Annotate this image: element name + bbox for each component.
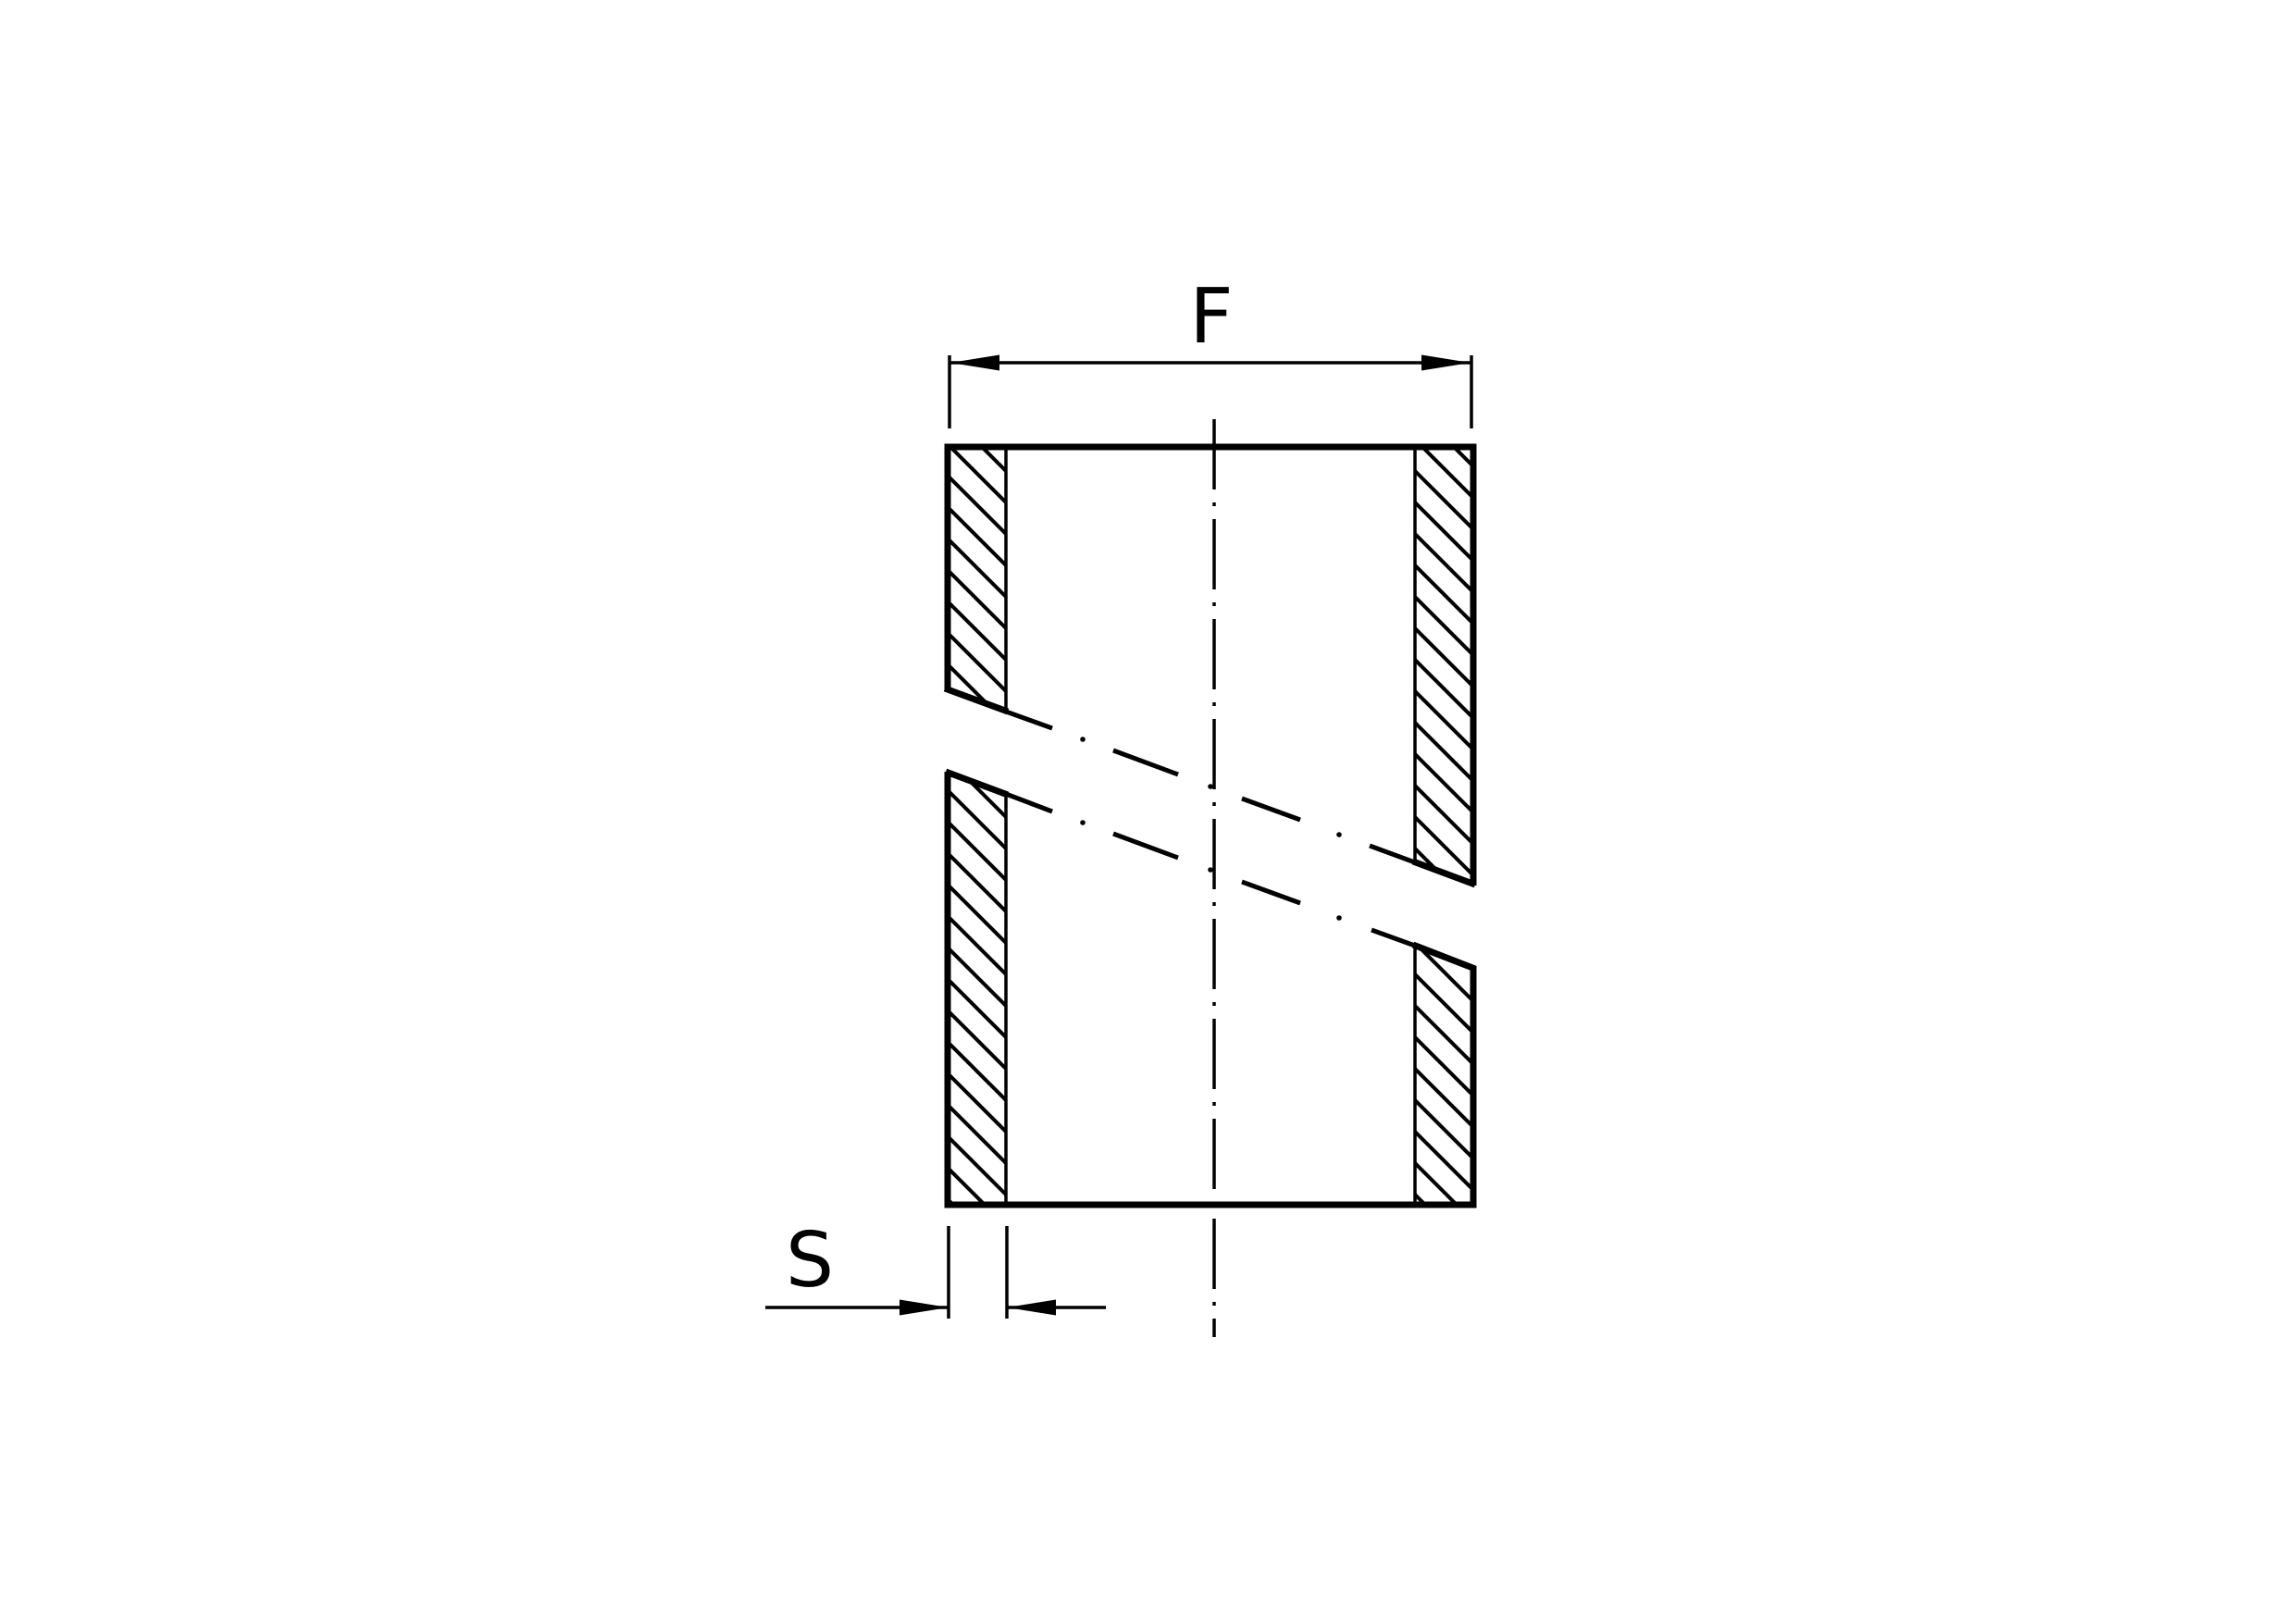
break-upper-dash-4 <box>1370 846 1415 862</box>
break-lower-dash-3 <box>1242 882 1300 903</box>
break-upper-dash-2 <box>1113 750 1178 774</box>
section-hatching <box>948 447 1473 1205</box>
break-lower-dot-3 <box>1336 915 1342 921</box>
f-arrowhead-left <box>950 355 999 371</box>
hatch-upper-left-wall <box>948 447 1006 712</box>
hatch-lower-right-wall <box>1415 946 1473 1205</box>
break-upper-dot-3 <box>1336 832 1342 837</box>
break-lower-dot-2 <box>1208 867 1213 873</box>
dimension-f: F <box>949 273 1471 428</box>
s-arrowhead-left <box>900 1300 949 1316</box>
break-upper-dash-3 <box>1242 799 1300 820</box>
pipe-section-drawing: F S <box>0 0 2296 1623</box>
drawing-canvas: F S <box>0 0 2296 1623</box>
hatch-upper-right-wall <box>1415 447 1473 885</box>
break-lower-dash-1 <box>1006 794 1052 811</box>
break-line-upper <box>945 688 1475 885</box>
dimension-label-f: F <box>1189 273 1233 361</box>
break-lower-dash-2 <box>1113 834 1178 858</box>
break-upper-dot-2 <box>1208 784 1213 789</box>
dimension-label-s: S <box>786 1217 834 1305</box>
f-arrowhead-right <box>1421 355 1471 371</box>
break-upper-dot-1 <box>1080 737 1086 742</box>
break-lower-dot-1 <box>1080 820 1086 825</box>
break-upper-dash-1 <box>1006 712 1052 728</box>
break-line-lower <box>946 772 1475 969</box>
dimension-s: S <box>765 1217 1106 1319</box>
break-lower-dash-4 <box>1371 930 1415 946</box>
bore-inner-edges <box>1006 447 1415 1205</box>
hatch-lower-left-wall <box>948 773 1006 1205</box>
s-arrowhead-right <box>1007 1300 1056 1316</box>
pipe-outline <box>945 444 1477 1208</box>
